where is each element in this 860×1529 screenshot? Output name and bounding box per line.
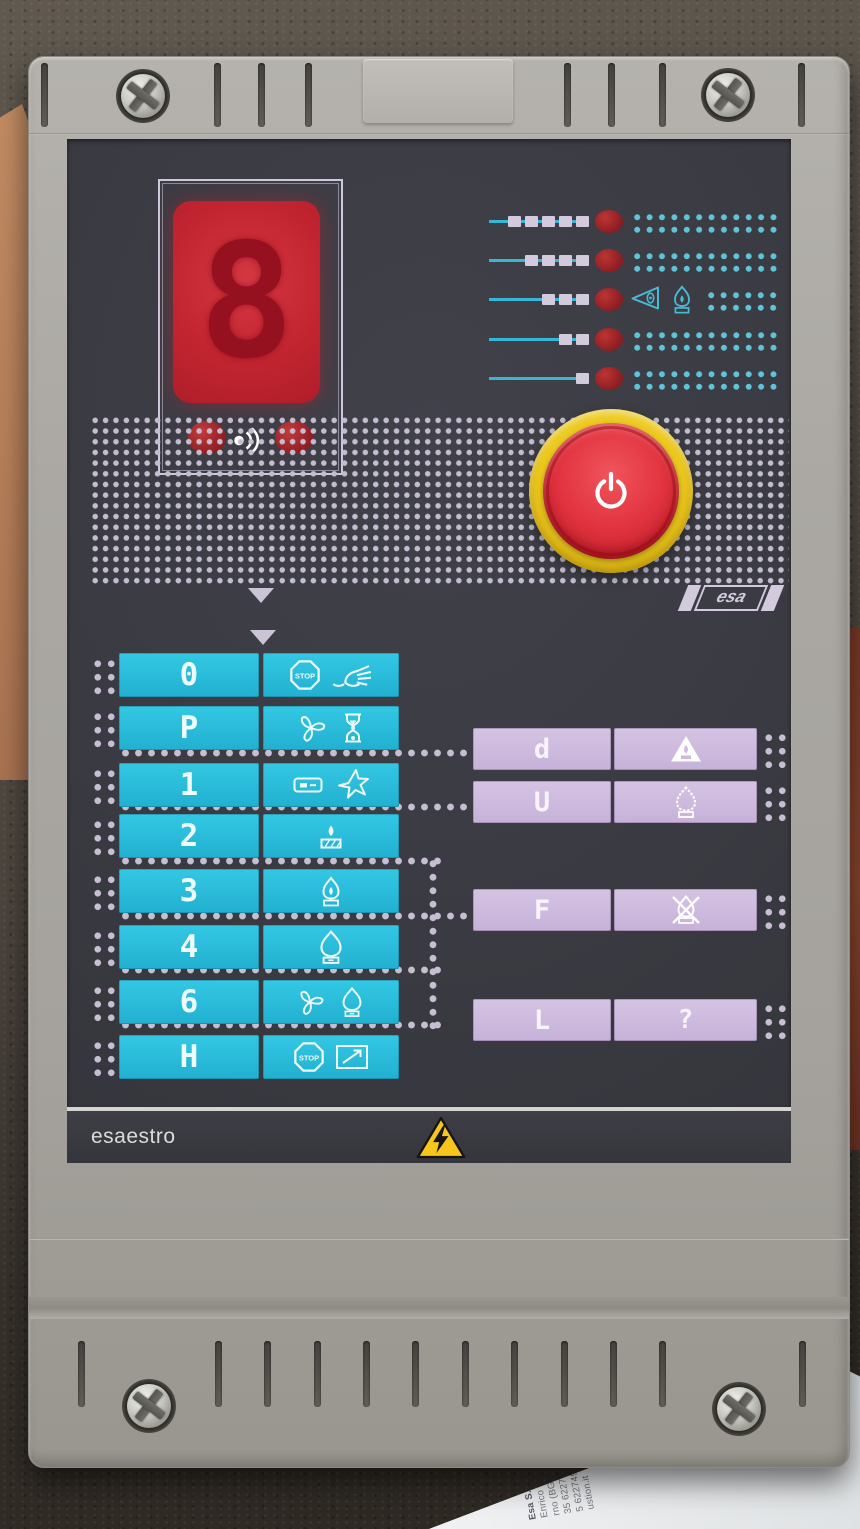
ignition-transformer-icon [293,777,323,793]
red-led [595,210,623,233]
vent-slot [610,1341,617,1407]
mode-label: 4 [180,929,199,965]
mode-button-icons[interactable] [263,814,399,858]
housing-groove [29,1238,849,1240]
mode-label: 2 [180,818,199,854]
flame-crossed-icon [669,893,703,927]
screw-icon [712,1382,766,1436]
param-button-icon[interactable] [614,728,757,770]
mode-label: H [180,1039,199,1075]
param-button-label[interactable]: U [473,781,611,823]
mode-row-4: 4 [89,925,469,969]
vent-slot [41,63,48,127]
dot-cluster [89,982,116,1022]
dot-cluster [89,708,116,748]
red-led [595,367,623,390]
mode-button-icons[interactable] [263,653,399,697]
fan-icon [294,711,328,745]
param-row-d: d [473,728,787,770]
level-indicator-row [489,286,845,312]
vent-slot [215,1341,222,1407]
flame-triangle-icon [669,734,703,764]
vent-slot [659,63,666,127]
question-mark: ? [678,1005,694,1035]
mode-button-icons[interactable] [263,1035,399,1079]
down-arrow-icon [250,630,276,645]
logo-text: esa [713,587,749,607]
vent-slot [462,1341,469,1407]
display-digit: 8 [199,223,294,381]
level-bar-2 [489,333,589,345]
mode-row-6: 6 [89,980,469,1024]
param-row-L: L ? [473,999,787,1041]
vent-slot [798,63,805,127]
mounting-tab [363,59,513,123]
mode-button-icons[interactable] [263,869,399,913]
dot-cluster [89,871,116,911]
photo-scene: Esa S.p.A. Enrico Fermi 40 rno (BG) - It… [0,0,860,1529]
hourglass-icon [338,711,368,745]
mode-button-label[interactable]: 0 [119,653,259,697]
mode-row-0: 0 [89,653,469,697]
vent-slot [511,1341,518,1407]
vent-slot [608,63,615,127]
dot-cluster [760,890,787,930]
red-led [595,288,623,311]
param-button-icon[interactable] [614,889,757,931]
mode-button-label[interactable]: 6 [119,980,259,1024]
dot-cluster [760,729,787,769]
eye-triangle-icon [629,283,661,313]
spark-icon [333,767,369,803]
high-voltage-triangle-icon [415,1114,467,1161]
vent-slot [363,1341,370,1407]
flame-chamber-icon [665,283,699,315]
dot-cluster [760,1000,787,1040]
mode-button-icons[interactable] [263,706,399,750]
mode-button-icons[interactable] [263,925,399,969]
stop-icon [293,1041,325,1073]
vent-slot [659,1341,666,1407]
param-button-label[interactable]: F [473,889,611,931]
vent-slot [258,63,265,127]
dot-cluster [760,782,787,822]
screw-icon [701,68,755,122]
mode-row-P: P [89,706,469,750]
dot-cluster [89,816,116,856]
param-button-label[interactable]: d [473,728,611,770]
vent-slot [214,63,221,127]
power-button[interactable] [529,409,693,573]
mode-row-H: H [89,1035,469,1079]
flame-dotted-icon [669,785,703,819]
vent-slot [305,63,312,127]
level-indicator-row [489,208,845,234]
stop-icon [289,659,321,691]
mode-button-label[interactable]: 1 [119,763,259,807]
vent-slot [314,1341,321,1407]
mode-label: 0 [180,657,199,693]
vent-slot [799,1341,806,1407]
high-flame-icon [313,929,349,965]
param-button-icon[interactable] [614,781,757,823]
high-flame-icon [336,986,368,1018]
down-arrow-icon [248,588,274,603]
ramp-arrow-icon [335,1044,369,1070]
dot-matrix [629,365,779,391]
pilot-flame-icon [314,822,348,850]
param-row-U: U [473,781,787,823]
dot-matrix [629,247,779,273]
housing-groove [29,133,849,135]
dot-matrix [629,208,779,234]
param-label: L [534,1005,550,1036]
level-indicator-row [489,326,845,352]
dot-cluster [89,1037,116,1077]
housing-step [29,1297,849,1319]
seven-segment-display: 8 [173,201,320,403]
dot-matrix [629,326,779,352]
vent-slot [78,1341,85,1407]
dot-cluster [89,927,116,967]
mode-row-3: 3 [89,869,469,913]
red-led [595,328,623,351]
param-label: d [534,734,550,765]
mode-button-label[interactable]: H [119,1035,259,1079]
product-name: esaestro [91,1125,176,1149]
mode-button-icons[interactable] [263,763,399,807]
mode-button-label[interactable]: 3 [119,869,259,913]
level-indicator-row [489,247,845,273]
mode-row-2: 2 [89,814,469,858]
vent-slot [564,63,571,127]
red-led [595,249,623,272]
screw-icon [116,69,170,123]
vent-slot [561,1341,568,1407]
esa-logo: esa [683,585,779,611]
dot-matrix [703,286,779,312]
mode-button-label[interactable]: 4 [119,925,259,969]
param-row-F: F [473,889,787,931]
mode-button-label[interactable]: 2 [119,814,259,858]
level-bar-5 [489,215,589,227]
screw-icon [122,1379,176,1433]
mode-label: P [180,710,199,746]
level-bar-4 [489,254,589,266]
param-button-icon[interactable]: ? [614,999,757,1041]
front-panel: 8 [67,139,791,1107]
hand-manual-icon [331,660,373,690]
brand-strip: esaestro [67,1111,791,1163]
vent-slot [412,1341,419,1407]
level-bar-1 [489,372,589,384]
mode-row-1: 1 [89,763,469,807]
vent-slot [264,1341,271,1407]
param-button-label[interactable]: L [473,999,611,1041]
dot-cluster [89,655,116,695]
fan-icon [294,986,326,1018]
mode-label: 3 [180,873,199,909]
dot-cluster [89,765,116,805]
low-flame-icon [314,874,348,908]
param-label: U [534,787,550,818]
param-label: F [534,895,550,926]
mode-button-label[interactable]: P [119,706,259,750]
mode-label: 6 [180,984,199,1020]
level-bar-3 [489,293,589,305]
mode-button-icons[interactable] [263,980,399,1024]
controller-device: 8 [28,56,850,1468]
mode-label: 1 [180,767,199,803]
level-indicator-row [489,365,845,391]
